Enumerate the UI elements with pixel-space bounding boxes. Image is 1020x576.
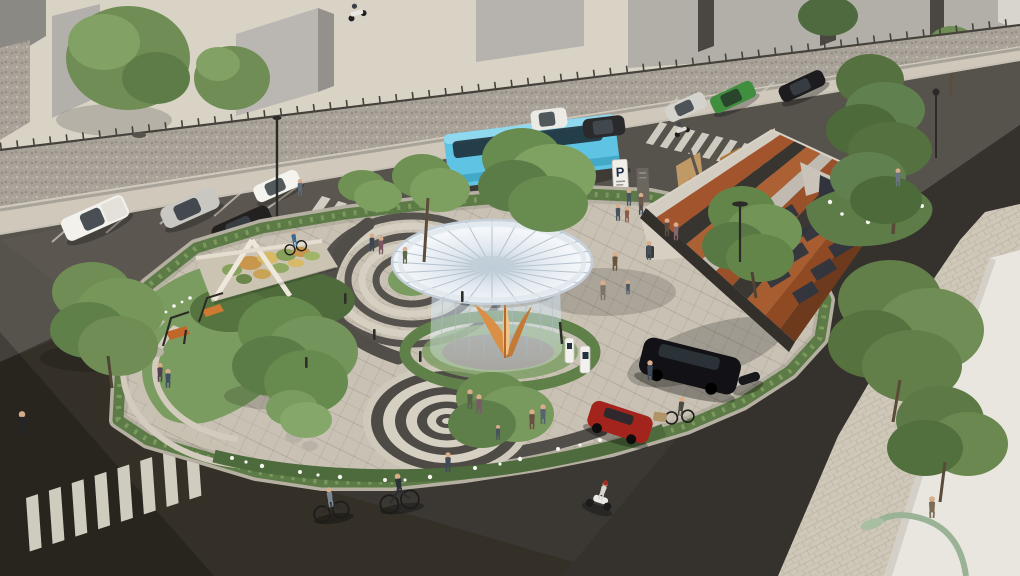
- wayfinding-totem: [636, 168, 649, 202]
- funnel-canopy: [392, 220, 592, 304]
- manhole-cover: [132, 132, 146, 138]
- parking-sign-letter: P: [615, 164, 625, 179]
- render-canvas: P: [0, 0, 1020, 576]
- park-render: P: [0, 0, 1020, 576]
